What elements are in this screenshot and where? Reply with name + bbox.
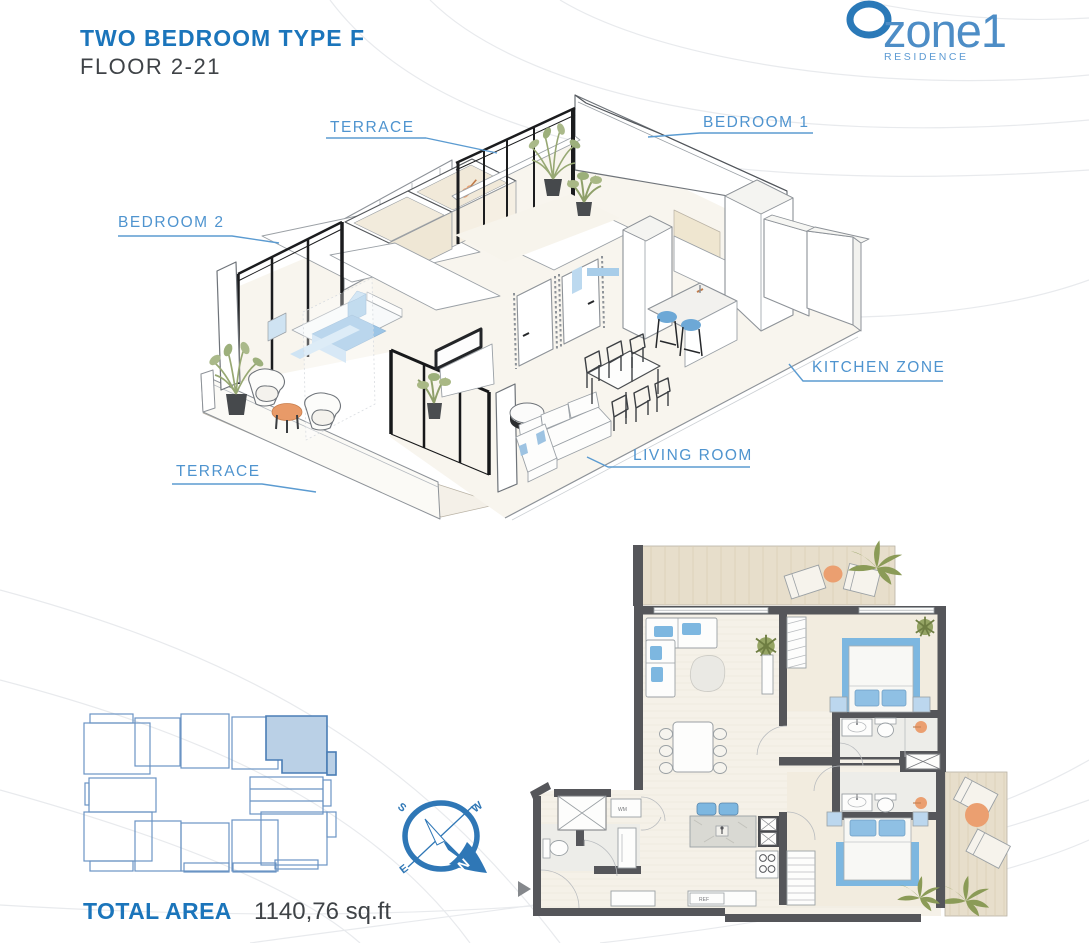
svg-text:BEDROOM 2: BEDROOM 2 [118,214,225,231]
svg-text:RESIDENCE: RESIDENCE [884,51,969,63]
svg-text:zone1: zone1 [883,4,1006,57]
svg-text:BEDROOM 1: BEDROOM 1 [703,114,810,131]
svg-text:WM: WM [618,807,627,813]
svg-text:LIVING ROOM: LIVING ROOM [633,447,753,464]
svg-text:TERRACE: TERRACE [176,463,261,480]
svg-text:TOTAL AREA: TOTAL AREA [83,898,232,924]
svg-text:REF: REF [699,897,709,903]
svg-text:1140,76 sq.ft: 1140,76 sq.ft [254,898,391,925]
svg-text:KITCHEN ZONE: KITCHEN ZONE [812,359,945,376]
svg-text:TERRACE: TERRACE [330,119,415,136]
svg-text:TWO BEDROOM TYPE F: TWO BEDROOM TYPE F [80,25,365,51]
svg-text:FLOOR 2-21: FLOOR 2-21 [80,54,221,79]
